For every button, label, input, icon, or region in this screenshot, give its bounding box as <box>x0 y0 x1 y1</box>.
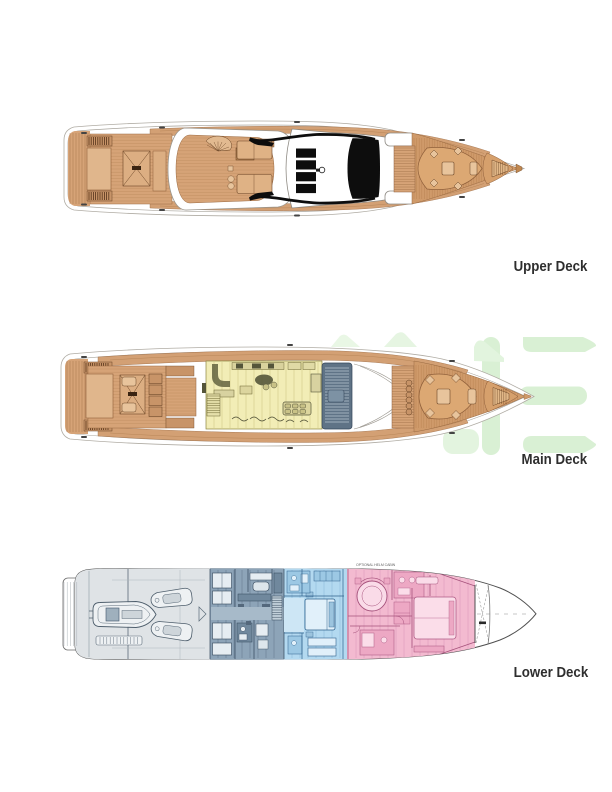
svg-text:OPTIONAL HELM CABIN: OPTIONAL HELM CABIN <box>356 563 396 567</box>
